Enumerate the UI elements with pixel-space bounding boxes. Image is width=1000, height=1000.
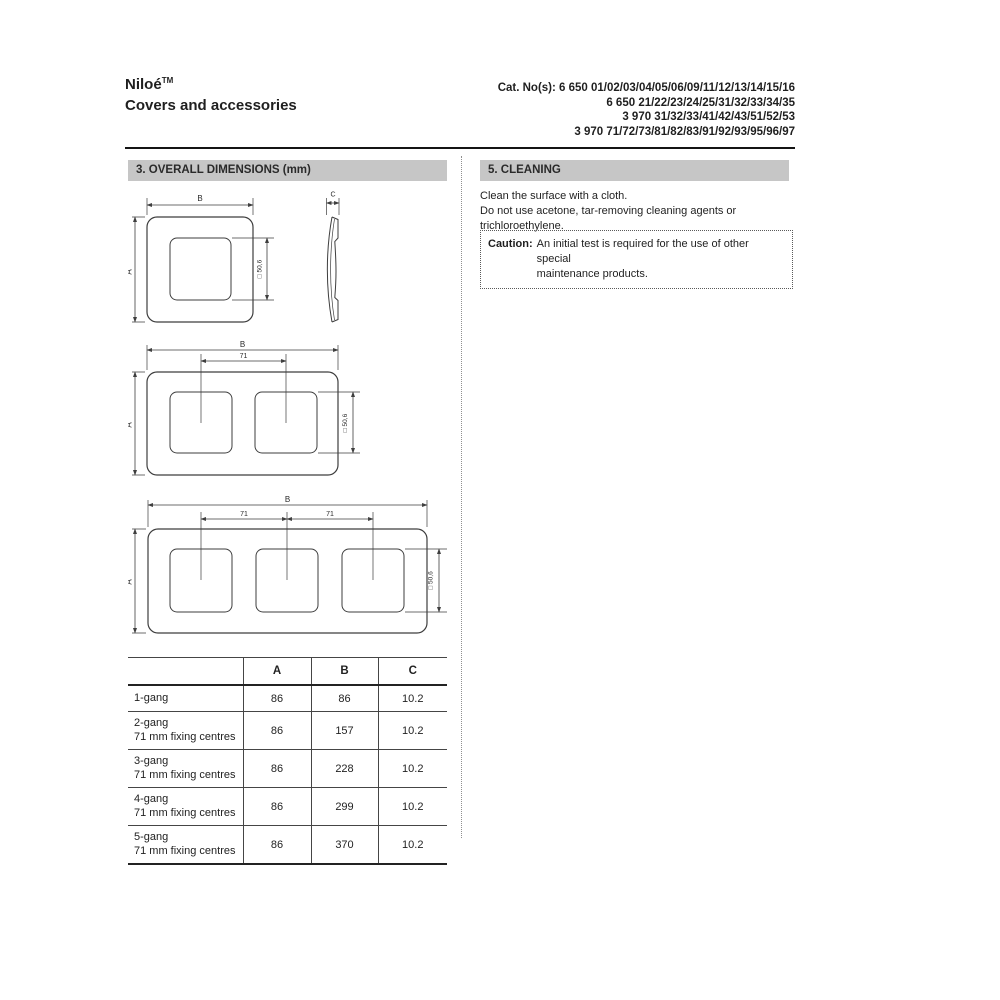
brand-name: Niloé	[125, 76, 162, 93]
column-divider	[461, 156, 462, 838]
cat-line: Cat. No(s): 6 650 01/02/03/04/05/06/09/1…	[498, 81, 795, 96]
side-profile	[327, 217, 338, 322]
product-subtitle: Covers and accessories	[125, 97, 297, 114]
table-row-3gang: 3-gang71 mm fixing centres 86 228 10.2	[128, 750, 447, 788]
cover-plate-outline	[147, 372, 338, 475]
cleaning-instructions: Clean the surface with a cloth. Do not u…	[480, 189, 800, 234]
table-row-4gang: 4-gang71 mm fixing centres 86 299 10.2	[128, 788, 447, 826]
diagram-3-gang: 71 71 B A □ 50,6	[128, 488, 460, 646]
dim-label-centres: 71	[240, 511, 248, 518]
row-sublabel: 71 mm fixing centres	[134, 769, 239, 783]
cleaning-line: Clean the surface with a cloth.	[480, 189, 800, 204]
table-row-5gang: 5-gang71 mm fixing centres 86 370 10.2	[128, 826, 447, 865]
value-b: 157	[311, 712, 378, 750]
window-opening	[170, 238, 231, 300]
col-header-c: C	[378, 658, 447, 686]
product-title: NiloéTM	[125, 76, 173, 93]
trademark-sup: TM	[162, 76, 174, 85]
value-c: 10.2	[378, 712, 447, 750]
cover-plate-outline	[148, 529, 427, 633]
diagram-1-gang: B A □ 50,6 C	[128, 188, 460, 336]
caution-label: Caution:	[488, 237, 533, 282]
dim-label-window: □ 50,6	[342, 413, 349, 432]
value-c: 10.2	[378, 750, 447, 788]
header-divider	[125, 147, 795, 149]
col-header-blank	[128, 658, 243, 686]
row-label: 1-gang	[134, 692, 239, 706]
cover-plate-outline	[147, 217, 253, 322]
dim-label-c: C	[330, 192, 335, 199]
row-label: 4-gang	[134, 793, 239, 807]
value-a: 86	[243, 750, 311, 788]
row-label: 5-gang	[134, 831, 239, 845]
dim-label-a: A	[128, 422, 134, 428]
dim-label-centres: 71	[326, 511, 334, 518]
dimensions-table: A B C 1-gang 86 86 10.2 2-gang71 mm fixi…	[128, 657, 447, 865]
diagram-2-gang: 71 B A □ 50,6	[128, 340, 460, 486]
caution-text: An initial test is required for the use …	[537, 237, 785, 282]
cat-line: 3 970 71/72/73/81/82/83/91/92/93/95/96/9…	[498, 125, 795, 140]
value-b: 228	[311, 750, 378, 788]
col-header-a: A	[243, 658, 311, 686]
dim-label-window: □ 50,6	[257, 259, 264, 278]
section-title-dimensions: 3. OVERALL DIMENSIONS (mm)	[128, 160, 447, 181]
dim-label-b: B	[285, 495, 290, 504]
cat-line: 6 650 21/22/23/24/25/31/32/33/34/35	[498, 96, 795, 111]
dim-label-b: B	[240, 340, 245, 349]
dim-label-a: A	[128, 579, 134, 585]
section-title-cleaning: 5. CLEANING	[480, 160, 789, 181]
caution-box: Caution: An initial test is required for…	[480, 230, 793, 289]
dim-label-centres: 71	[240, 353, 248, 360]
value-a: 86	[243, 826, 311, 865]
row-sublabel: 71 mm fixing centres	[134, 731, 239, 745]
value-c: 10.2	[378, 788, 447, 826]
cat-line: 3 970 31/32/33/41/42/43/51/52/53	[498, 110, 795, 125]
value-b: 370	[311, 826, 378, 865]
col-header-b: B	[311, 658, 378, 686]
dim-label-window: □ 50,6	[428, 571, 435, 590]
caution-line: An initial test is required for the use …	[537, 237, 785, 267]
catalog-numbers: Cat. No(s): 6 650 01/02/03/04/05/06/09/1…	[498, 81, 795, 139]
value-a: 86	[243, 712, 311, 750]
table-header-row: A B C	[128, 658, 447, 686]
value-c: 10.2	[378, 826, 447, 865]
value-a: 86	[243, 685, 311, 712]
row-sublabel: 71 mm fixing centres	[134, 845, 239, 859]
caution-line: maintenance products.	[537, 267, 785, 282]
value-b: 86	[311, 685, 378, 712]
dim-label-a: A	[128, 269, 134, 275]
table-row-2gang: 2-gang71 mm fixing centres 86 157 10.2	[128, 712, 447, 750]
row-sublabel: 71 mm fixing centres	[134, 807, 239, 821]
row-label: 3-gang	[134, 755, 239, 769]
table-row-1gang: 1-gang 86 86 10.2	[128, 685, 447, 712]
dim-label-b: B	[197, 194, 202, 203]
row-label: 2-gang	[134, 717, 239, 731]
datasheet-page: NiloéTM Covers and accessories Cat. No(s…	[0, 0, 1000, 1000]
value-c: 10.2	[378, 685, 447, 712]
value-a: 86	[243, 788, 311, 826]
value-b: 299	[311, 788, 378, 826]
